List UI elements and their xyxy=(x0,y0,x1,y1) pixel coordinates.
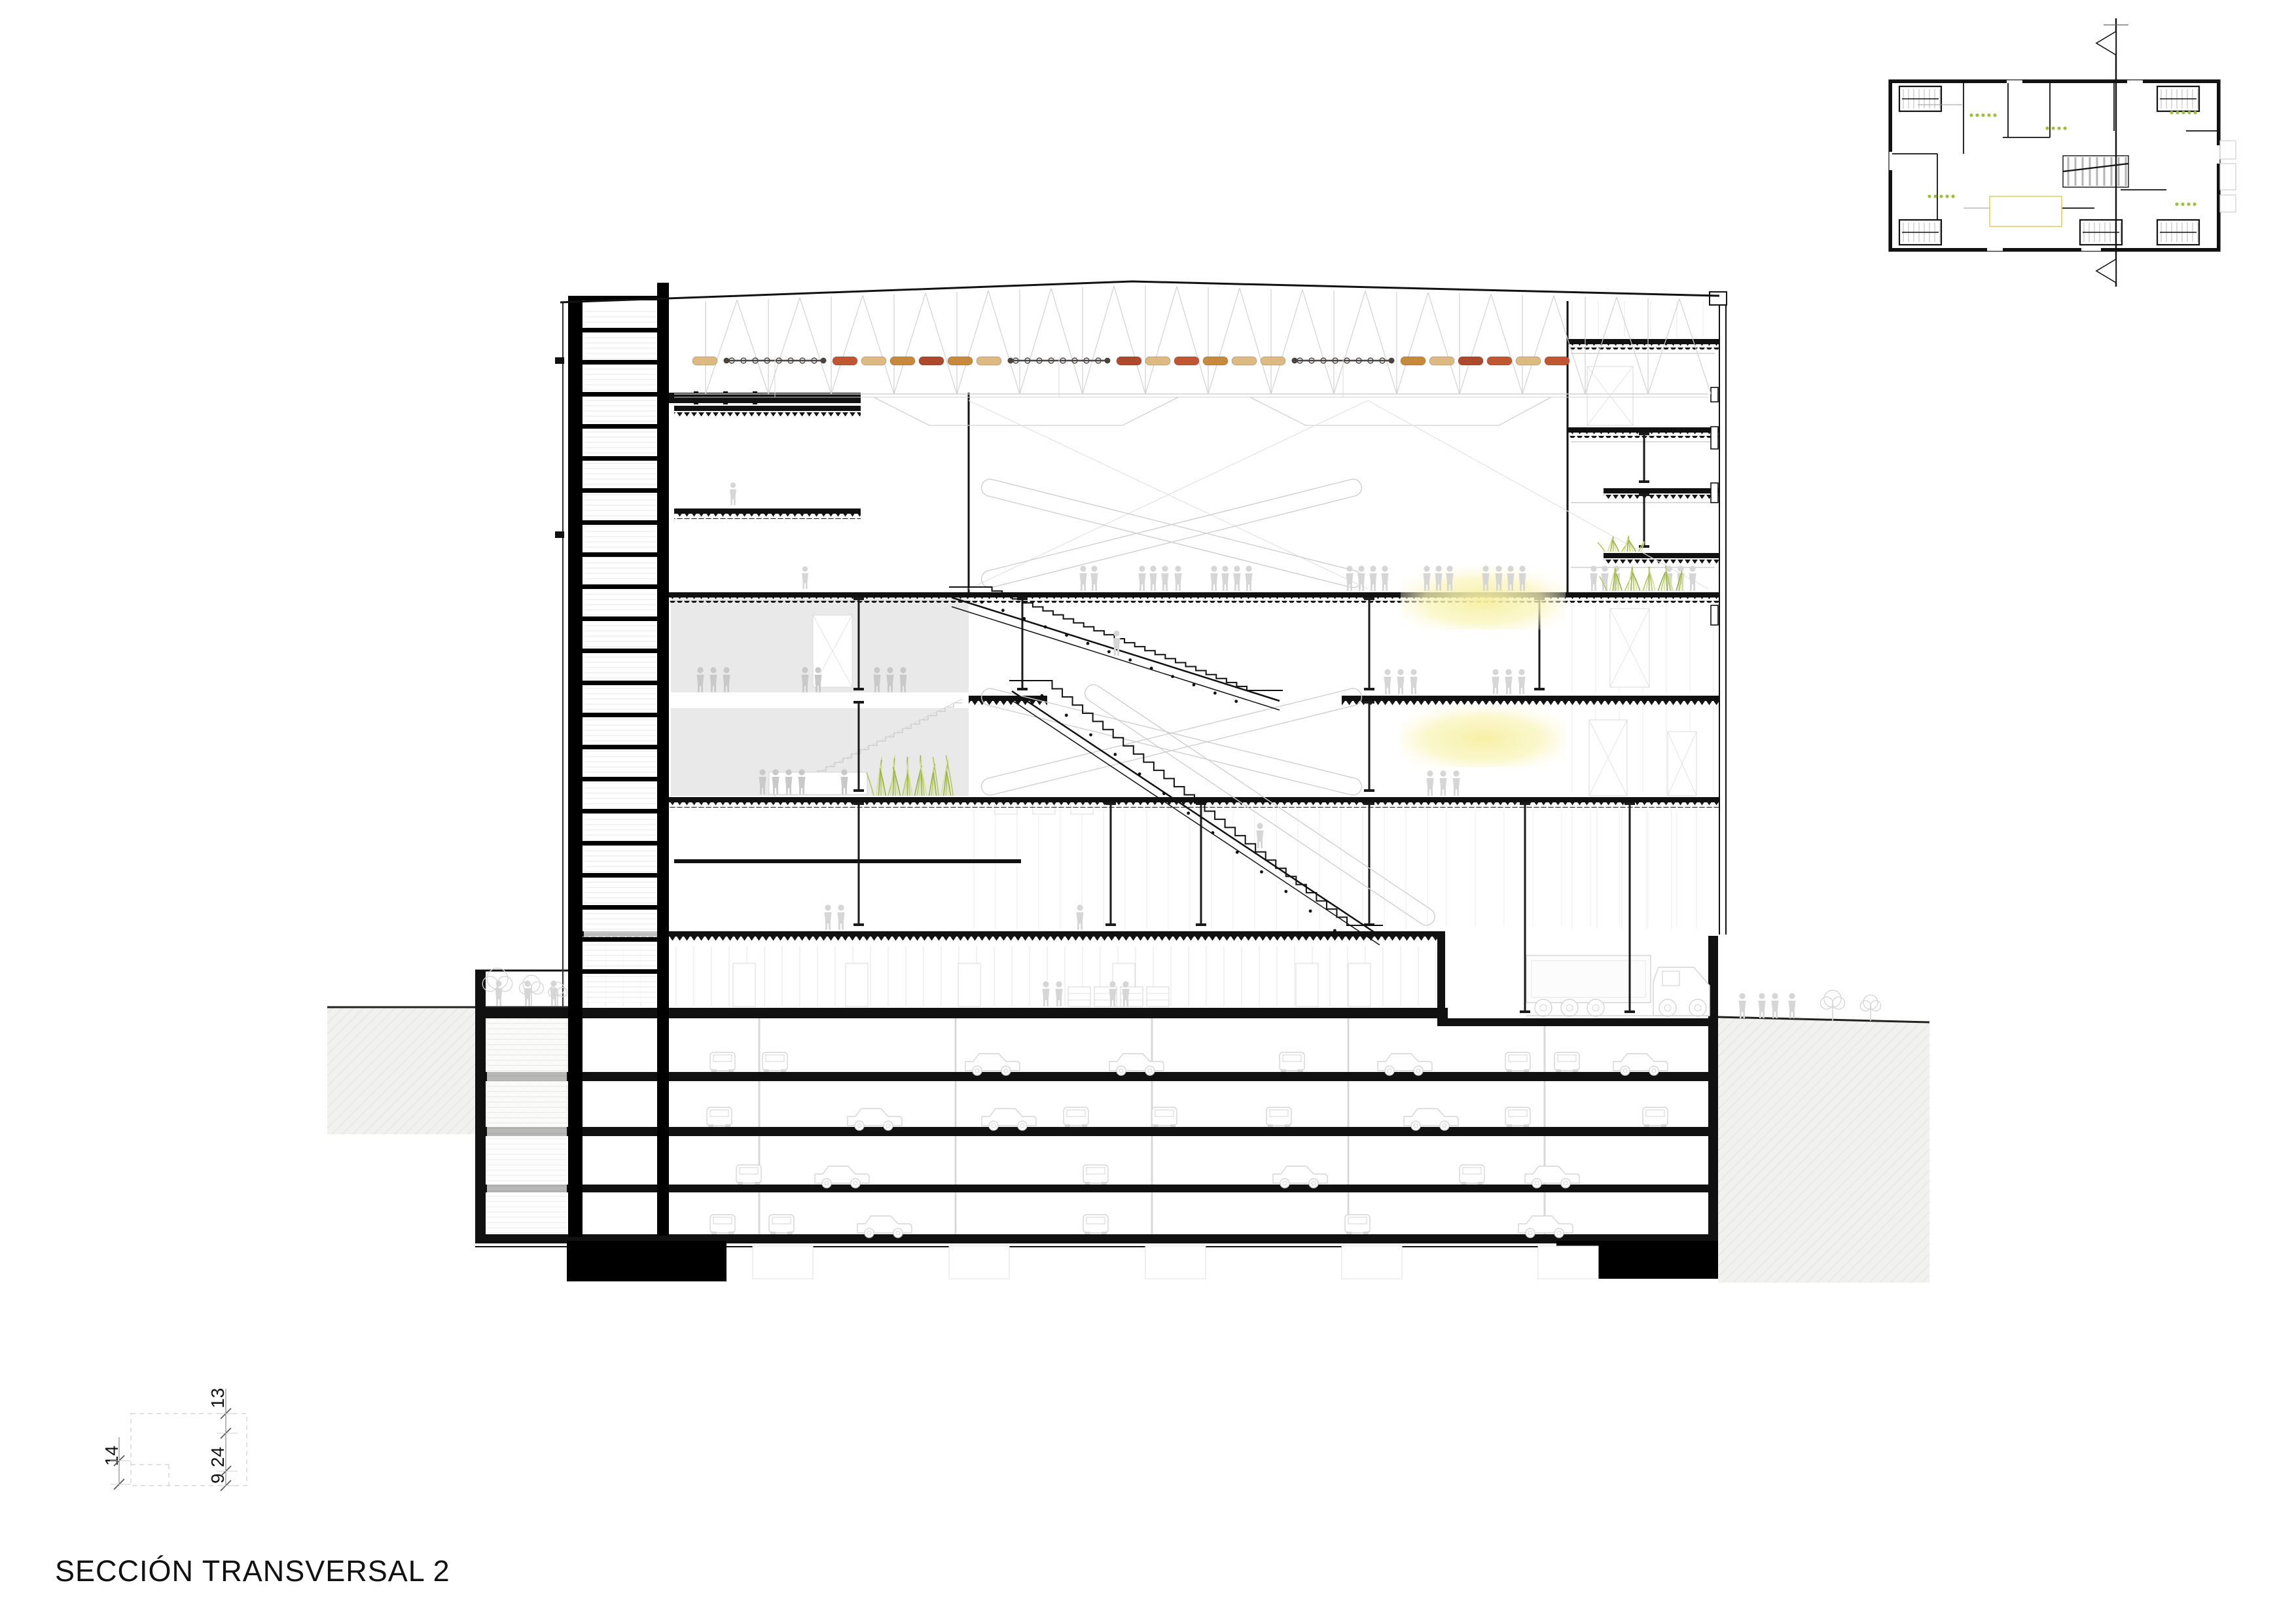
dimension-figure: 14 13 24 9 xyxy=(101,1388,247,1491)
stairs-and-escalators xyxy=(949,477,1438,945)
baffle-pill xyxy=(1203,357,1228,365)
door xyxy=(846,963,868,1007)
tower-landing xyxy=(583,713,657,717)
person-figure xyxy=(1211,565,1218,591)
person-figure xyxy=(1162,565,1169,591)
car-glyph xyxy=(707,1107,732,1127)
person-figure xyxy=(1492,669,1499,694)
plan-plant-dots xyxy=(2063,126,2066,130)
car-glyph xyxy=(1345,1215,1370,1234)
plan-plant-dots xyxy=(2176,111,2179,114)
plan-plant-dots xyxy=(2057,126,2060,130)
escalator-elevation xyxy=(980,477,1363,589)
person-figure xyxy=(550,980,558,1006)
plan-plant-dots xyxy=(2181,111,2185,114)
person-figure xyxy=(1772,993,1779,1018)
tower-landing xyxy=(583,488,657,493)
floor-slab xyxy=(1568,427,1719,433)
tower-landing xyxy=(583,937,657,942)
section-arrow xyxy=(2096,259,2116,283)
tower-landing xyxy=(583,745,657,749)
plan-plant-dots xyxy=(1928,194,1931,198)
tower-landing xyxy=(583,905,657,910)
plan-plant-dots xyxy=(2045,126,2049,130)
person-figure xyxy=(1739,993,1746,1018)
person-figure xyxy=(1789,993,1796,1018)
glowing-screen xyxy=(1401,704,1566,767)
section-drawing: 14 13 24 9 SECCIÓN TRANSVERSAL 2 xyxy=(0,0,2296,1623)
person-figure xyxy=(1453,770,1460,796)
person-figure xyxy=(1257,823,1264,848)
section-arrow xyxy=(2096,31,2116,55)
drawing-title: SECCIÓN TRANSVERSAL 2 xyxy=(55,1554,450,1588)
person-figure xyxy=(802,566,808,589)
person-figure xyxy=(1077,904,1084,930)
tree-glyph xyxy=(1871,1001,1881,1011)
parking-slab xyxy=(486,1072,1710,1081)
right-basement-wall xyxy=(1708,936,1718,1237)
door xyxy=(1296,963,1318,1007)
baffle-pill xyxy=(890,357,915,365)
car-glyph xyxy=(1554,1052,1579,1072)
baffle-pill xyxy=(1487,357,1512,365)
car-glyph xyxy=(1280,1052,1304,1072)
car-glyph xyxy=(1505,1052,1530,1072)
crate xyxy=(1068,987,1090,1007)
colored-baffle-band xyxy=(692,357,1570,397)
tower-landing xyxy=(583,809,657,813)
tree-glyph xyxy=(1833,997,1845,1009)
floor-slab xyxy=(969,696,1047,701)
plan-plant-dots xyxy=(1981,113,1984,116)
person-figure xyxy=(1397,669,1405,694)
person-figure xyxy=(1370,565,1377,591)
plan-plant-dots xyxy=(2187,111,2191,114)
pile-cap xyxy=(1538,1246,1598,1279)
plan-plant-dots xyxy=(2175,202,2178,205)
plan-plant-dots xyxy=(2193,111,2197,114)
plan-plant-dots xyxy=(2181,202,2184,205)
dim-label-9: 9 xyxy=(207,1473,228,1484)
person-figure xyxy=(1234,565,1241,591)
plan-plant-dots xyxy=(1933,194,1937,198)
dock-slab xyxy=(1440,1018,1710,1026)
person-figure xyxy=(1505,669,1513,694)
baffle-pill xyxy=(861,357,886,365)
tower-landing xyxy=(583,456,657,461)
car-glyph xyxy=(1266,1107,1291,1127)
person-figure xyxy=(825,904,832,930)
pile-cap xyxy=(1145,1246,1206,1279)
tree-glyph xyxy=(1821,997,1833,1009)
person-figure xyxy=(1150,565,1157,591)
floor-slab xyxy=(1604,553,1719,558)
baffle-pill xyxy=(1174,357,1199,365)
person-figure xyxy=(1091,565,1098,591)
person-figure xyxy=(1175,565,1182,591)
person-figure xyxy=(1440,770,1447,796)
tower-landing xyxy=(583,616,657,621)
person-figure xyxy=(1043,981,1050,1007)
hall-counter xyxy=(769,772,867,794)
tower-landing xyxy=(583,777,657,781)
baffle-pill xyxy=(1145,357,1170,365)
car-glyph xyxy=(1505,1107,1530,1127)
door xyxy=(958,963,980,1007)
plan-plant-dots xyxy=(1987,113,1990,116)
plan-plant-dots xyxy=(1939,194,1943,198)
car-glyph xyxy=(1083,1215,1108,1234)
floor-slab xyxy=(1604,488,1719,493)
tower-landing xyxy=(583,552,657,557)
truck-glyph xyxy=(1526,955,1710,1016)
parking-slab xyxy=(486,1127,1710,1136)
baffle-pill xyxy=(1117,357,1141,365)
pile-cap xyxy=(1342,1246,1402,1279)
plan-plant-dots xyxy=(1969,113,1973,116)
plan-plant-dots xyxy=(1951,194,1954,198)
person-figure xyxy=(1384,669,1391,694)
car-glyph xyxy=(1643,1107,1668,1127)
car-glyph xyxy=(762,1052,787,1072)
tower-landing xyxy=(583,424,657,429)
grass-blade xyxy=(1598,543,1605,552)
ground-right xyxy=(1718,1017,1929,1283)
facade-vent xyxy=(1711,483,1718,503)
person-figure xyxy=(1080,565,1087,591)
projection-screens xyxy=(1401,567,1566,767)
plan-plant-dots xyxy=(2051,126,2054,130)
tower-landing xyxy=(583,584,657,589)
pile-cap xyxy=(949,1246,1009,1279)
baffle-pill xyxy=(1545,357,1570,365)
person-figure xyxy=(495,980,503,1006)
person-figure xyxy=(1518,669,1526,694)
car-glyph xyxy=(1152,1107,1177,1127)
person-figure xyxy=(1410,669,1418,694)
floor-slab xyxy=(674,508,861,514)
tower-landing xyxy=(583,681,657,685)
facade-vent xyxy=(1711,605,1718,625)
plan-plant-dots xyxy=(2193,202,2196,205)
baffle-pill xyxy=(1232,357,1257,365)
roof-truss xyxy=(674,285,1711,589)
baffle-pill xyxy=(1516,357,1541,365)
tower-landing xyxy=(583,360,657,365)
crate xyxy=(1147,987,1169,1007)
tower-landing xyxy=(583,328,657,332)
baffle-pill xyxy=(977,357,1001,365)
stair-tower-wall xyxy=(568,296,583,1237)
baffle-pill xyxy=(1261,357,1285,365)
footing xyxy=(567,1241,726,1281)
plan-plant-dots xyxy=(1993,113,1996,116)
plan-plant-dots xyxy=(1975,113,1979,116)
key-plan xyxy=(1889,18,2236,287)
person-figure xyxy=(838,904,845,930)
roof-line xyxy=(560,281,1719,302)
car-glyph xyxy=(769,1215,794,1234)
baffle-pill xyxy=(1458,357,1483,365)
parapet xyxy=(1710,292,1727,305)
person-figure xyxy=(1590,565,1598,591)
facade-vent xyxy=(1711,427,1718,449)
person-figure xyxy=(1222,565,1229,591)
baffle-pill xyxy=(692,357,717,365)
drawing-sheet: 14 13 24 9 SECCIÓN TRANSVERSAL 2 xyxy=(0,0,2296,1623)
facade-vent xyxy=(1711,387,1718,402)
baffle-pill xyxy=(948,357,973,365)
tree-glyph xyxy=(531,982,544,994)
ground-floor-slab xyxy=(568,931,1440,936)
pile-cap xyxy=(753,1246,813,1279)
floor-slab xyxy=(1568,339,1719,344)
person-figure xyxy=(1358,565,1365,591)
person-figure xyxy=(1759,993,1766,1018)
tower-landing xyxy=(583,841,657,846)
tower-landing xyxy=(583,392,657,397)
plan-plant-dots xyxy=(2170,111,2173,114)
car-glyph xyxy=(1064,1107,1088,1127)
car-glyph xyxy=(710,1052,735,1072)
car-glyph xyxy=(1460,1165,1484,1185)
baffle-pill xyxy=(1401,357,1426,365)
person-figure xyxy=(1139,565,1146,591)
door xyxy=(1348,963,1371,1007)
key-outline xyxy=(131,1414,247,1486)
baffle-pill xyxy=(833,357,857,365)
person-figure xyxy=(1382,565,1389,591)
car-glyph xyxy=(710,1215,735,1234)
person-figure xyxy=(1246,565,1253,591)
parking-slab xyxy=(486,1185,1710,1192)
tower-landing xyxy=(583,873,657,878)
person-figure xyxy=(730,482,736,505)
basement-ceiling-slab xyxy=(486,1008,1440,1018)
dim-label-24: 24 xyxy=(207,1447,228,1467)
tower-landing xyxy=(583,520,657,525)
person-figure xyxy=(1056,981,1063,1007)
dim-label-13: 13 xyxy=(207,1388,228,1408)
car-glyph xyxy=(1083,1165,1108,1185)
tower-landing xyxy=(583,969,657,974)
person-figure xyxy=(1113,630,1121,656)
floor-slab xyxy=(1342,696,1719,701)
person-figure xyxy=(1427,770,1434,796)
plan-pool xyxy=(1990,196,2062,226)
tower-landing xyxy=(583,649,657,653)
escalator-elevation xyxy=(980,477,1363,589)
left-site-wall xyxy=(475,971,486,1008)
person-figure xyxy=(1689,565,1696,591)
plan-plant-dots xyxy=(1945,194,1948,198)
baffle-pill xyxy=(919,357,944,365)
baffle-pill xyxy=(1429,357,1454,365)
plan-plant-dots xyxy=(2187,202,2190,205)
floor-slab xyxy=(674,406,861,411)
stair-tower-wall xyxy=(657,283,669,1236)
car-glyph xyxy=(736,1165,761,1185)
door xyxy=(733,963,755,1007)
tree-glyph xyxy=(1860,1001,1871,1011)
